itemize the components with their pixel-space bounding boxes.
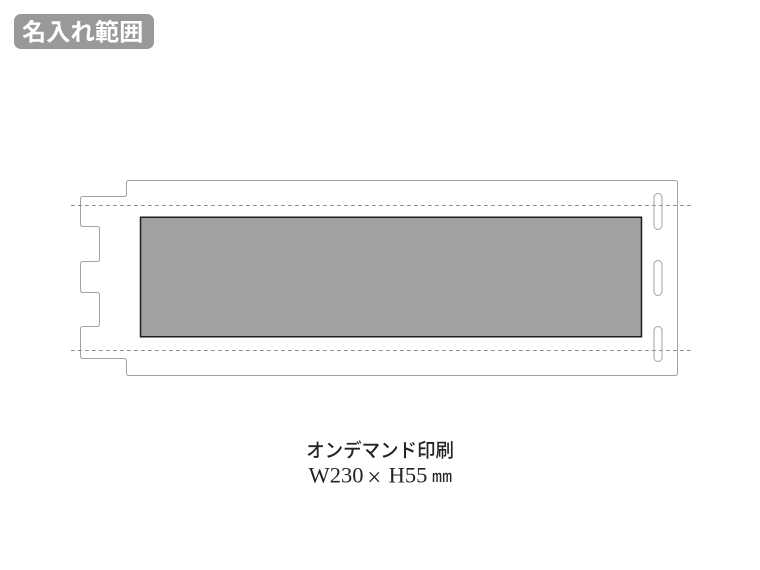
svg-text:H55: H55 bbox=[389, 462, 428, 487]
svg-text:×: × bbox=[367, 464, 381, 491]
svg-text:W230: W230 bbox=[309, 462, 364, 487]
